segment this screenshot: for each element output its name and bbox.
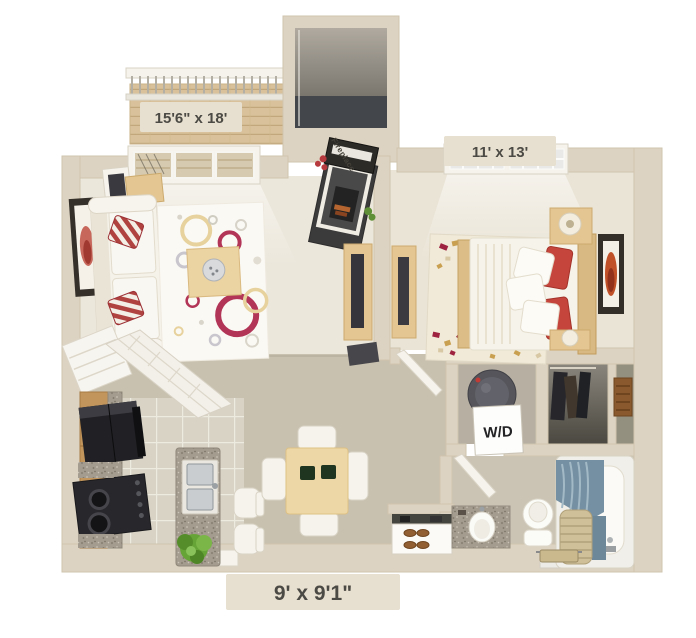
refrigerator <box>79 400 147 465</box>
dining-chair <box>298 426 336 450</box>
tv-console-bedroom <box>392 246 416 338</box>
shoe-cabinet <box>392 514 452 554</box>
wall-art-bedroom <box>598 234 624 314</box>
right-wall <box>634 148 662 572</box>
sink-basin <box>187 489 213 510</box>
dining-chair <box>300 512 338 536</box>
living-room-dims: 15'6" x 18' <box>155 110 228 127</box>
placemat <box>321 465 336 479</box>
dining-chair <box>346 452 368 500</box>
dining-table <box>286 448 348 514</box>
burner <box>89 489 109 509</box>
ottoman <box>347 342 379 366</box>
living-bedroom-divider-wall <box>374 156 390 360</box>
tv-icon <box>398 257 409 325</box>
tv-icon <box>108 173 126 198</box>
toilet <box>523 499 553 546</box>
vanity-sink <box>452 506 510 548</box>
washer-dryer: W/D <box>473 405 523 455</box>
tv-icon <box>351 254 364 328</box>
shoe-rack <box>614 378 632 416</box>
bar-stool <box>234 488 264 518</box>
burner <box>88 513 110 535</box>
bedroom-dims: 11' x 13' <box>472 144 528 161</box>
lamp-icon <box>562 330 578 346</box>
balcony-railing <box>126 68 290 78</box>
stove <box>73 474 151 538</box>
shoes <box>417 542 429 549</box>
sink-basin <box>187 464 213 485</box>
shoes <box>417 530 429 537</box>
shoes <box>404 542 416 549</box>
footboard <box>458 240 470 348</box>
bar-stool <box>234 524 264 554</box>
soap-tray <box>536 550 582 562</box>
faucet-icon <box>212 483 218 489</box>
placemat <box>300 466 315 480</box>
floorplan-canvas: Fireplace <box>0 0 696 638</box>
coffee-table <box>187 247 241 298</box>
dining-chair <box>262 458 286 500</box>
nightstand-top <box>550 208 592 244</box>
kitchen-dims: 9' x 9'1" <box>274 582 352 605</box>
washer-dryer-label: W/D <box>483 423 513 442</box>
faucet-icon <box>480 507 485 512</box>
floorplan-svg: Fireplace <box>0 0 696 638</box>
laundry-left-wall <box>446 364 458 456</box>
shoes <box>404 530 416 537</box>
nightstand-bottom <box>550 330 590 350</box>
bowl <box>202 258 225 281</box>
laundry-closet-divider <box>536 364 548 456</box>
